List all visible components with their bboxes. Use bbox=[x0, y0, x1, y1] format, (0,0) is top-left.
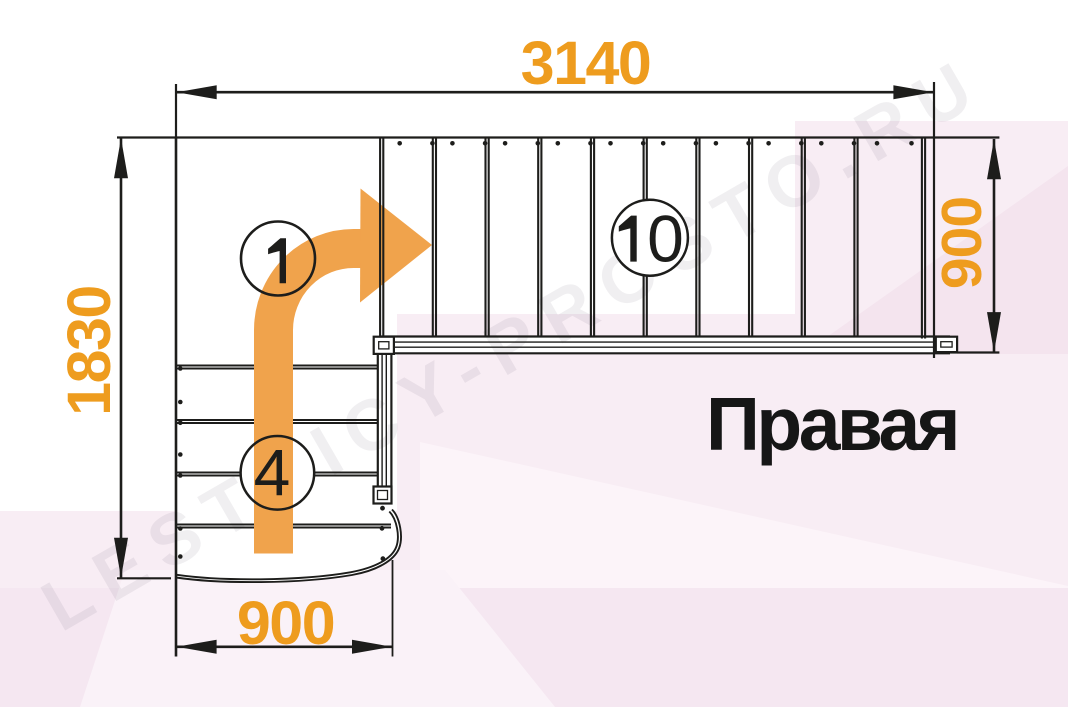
svg-text:1830: 1830 bbox=[55, 286, 123, 416]
svg-text:900: 900 bbox=[237, 589, 334, 657]
svg-text:4: 4 bbox=[254, 436, 291, 510]
svg-text:0: 0 bbox=[647, 202, 684, 276]
svg-text:Правая: Правая bbox=[706, 382, 957, 466]
svg-text:3140: 3140 bbox=[521, 29, 651, 97]
svg-text:900: 900 bbox=[930, 197, 994, 289]
